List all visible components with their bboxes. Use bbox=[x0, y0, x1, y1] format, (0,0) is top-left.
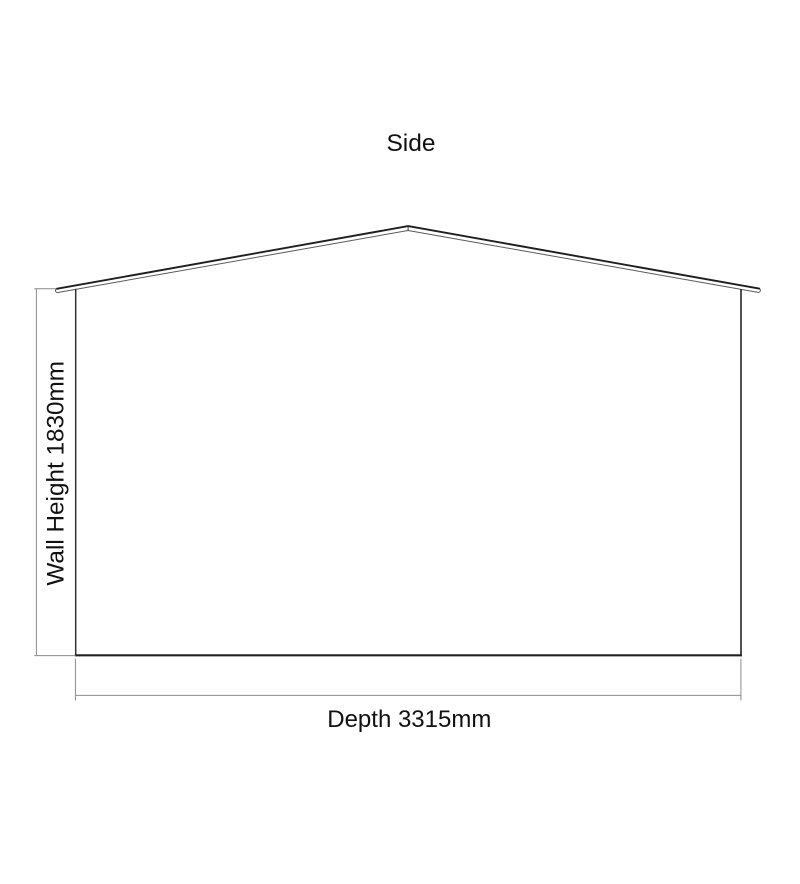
svg-text:Wall Height 1830mm: Wall Height 1830mm bbox=[42, 361, 69, 586]
svg-text:Depth 3315mm: Depth 3315mm bbox=[327, 706, 491, 733]
svg-text:Side: Side bbox=[386, 130, 435, 157]
